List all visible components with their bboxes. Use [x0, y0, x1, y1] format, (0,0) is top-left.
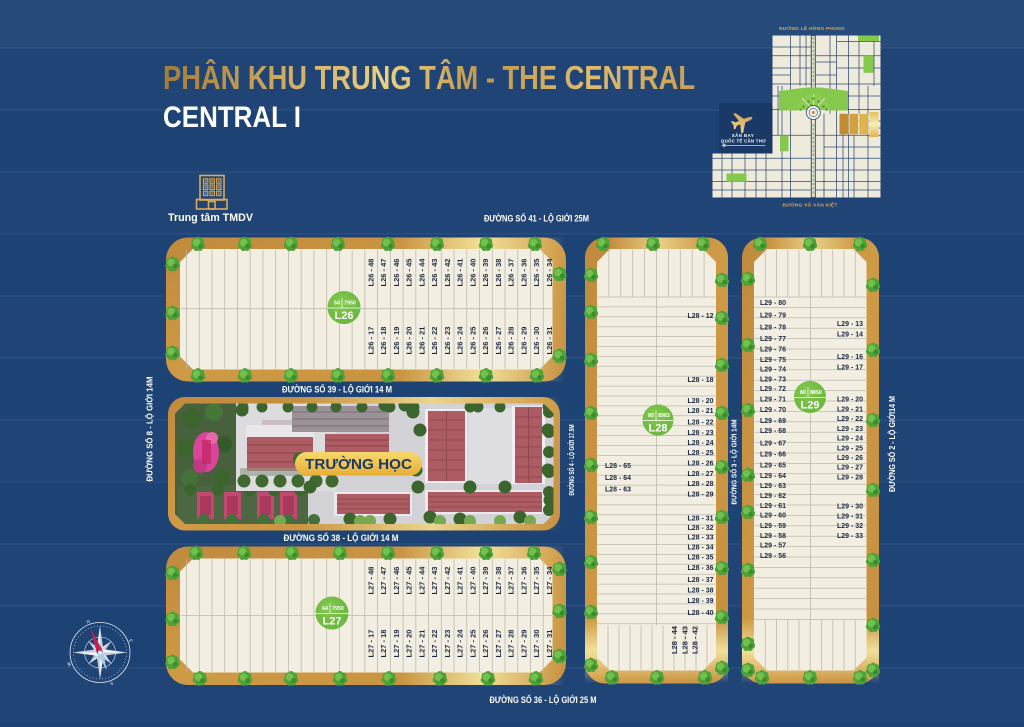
svg-text:CENTRAL I: CENTRAL I	[163, 101, 301, 134]
svg-text:ĐƯỜNG SỐ 8 - LỘ GIỚI 14M: ĐƯỜNG SỐ 8 - LỘ GIỚI 14M	[145, 376, 155, 481]
svg-text:L29 - 60: L29 - 60	[760, 513, 786, 520]
svg-text:L29 - 26: L29 - 26	[837, 455, 863, 462]
svg-text:64: 64	[322, 606, 328, 612]
svg-text:L29 - 30: L29 - 30	[837, 504, 863, 511]
svg-text:L26 - 40: L26 - 40	[468, 259, 477, 287]
svg-text:L29 - 67: L29 - 67	[760, 440, 786, 447]
svg-text:L26 - 19: L26 - 19	[392, 327, 401, 355]
svg-text:L29 - 23: L29 - 23	[837, 426, 863, 433]
svg-text:L26 - 48: L26 - 48	[366, 259, 375, 287]
svg-text:L27 - 42: L27 - 42	[443, 567, 452, 595]
svg-text:L28 - 36: L28 - 36	[687, 565, 713, 572]
svg-text:L28 - 23: L28 - 23	[687, 430, 713, 437]
svg-text:L28 - 22: L28 - 22	[687, 420, 713, 427]
svg-text:L27 - 31: L27 - 31	[545, 630, 554, 658]
svg-text:L28 - 31: L28 - 31	[687, 515, 713, 522]
svg-text:L28 - 34: L28 - 34	[687, 545, 713, 552]
svg-text:L26 - 34: L26 - 34	[545, 258, 554, 287]
svg-text:L27 - 36: L27 - 36	[519, 567, 528, 595]
svg-text:L29 - 25: L29 - 25	[837, 445, 863, 452]
svg-text:L29 - 68: L29 - 68	[760, 428, 786, 435]
svg-text:L26 - 37: L26 - 37	[507, 259, 516, 287]
svg-text:L27 - 39: L27 - 39	[481, 567, 490, 595]
svg-text:L27: L27	[323, 616, 342, 628]
svg-text:L29 - 76: L29 - 76	[760, 347, 786, 354]
svg-text:L28 - 63: L28 - 63	[605, 487, 631, 494]
svg-text:L26 - 39: L26 - 39	[481, 259, 490, 287]
svg-text:L27 - 26: L27 - 26	[481, 630, 490, 658]
svg-text:8983: 8983	[658, 413, 670, 419]
svg-text:L26 - 43: L26 - 43	[430, 259, 439, 287]
svg-text:L28 - 40: L28 - 40	[687, 610, 713, 617]
svg-text:L29 - 59: L29 - 59	[760, 523, 786, 530]
svg-text:ĐƯỜNG SỐ 39 - LỘ GIỚI 14 M: ĐƯỜNG SỐ 39 - LỘ GIỚI 14 M	[282, 384, 392, 396]
svg-text:L29 - 31: L29 - 31	[837, 513, 863, 520]
svg-text:L27 - 25: L27 - 25	[468, 630, 477, 658]
svg-text:L27 - 46: L27 - 46	[392, 567, 401, 595]
svg-text:L26 - 31: L26 - 31	[545, 327, 554, 355]
svg-text:L26 - 28: L26 - 28	[507, 327, 516, 355]
svg-text:L27 - 21: L27 - 21	[417, 630, 426, 658]
svg-text:L26 - 20: L26 - 20	[405, 327, 414, 355]
svg-text:L27 - 18: L27 - 18	[379, 630, 388, 658]
svg-text:L26 - 44: L26 - 44	[417, 258, 426, 287]
svg-text:L27 - 30: L27 - 30	[532, 630, 541, 658]
svg-text:L29 - 33: L29 - 33	[837, 533, 863, 540]
svg-text:L27 - 43: L27 - 43	[430, 567, 439, 595]
svg-text:L26 - 24: L26 - 24	[456, 326, 465, 355]
svg-text:L29 - 28: L29 - 28	[837, 474, 863, 481]
svg-text:L29 - 57: L29 - 57	[760, 543, 786, 550]
svg-text:L26 - 47: L26 - 47	[379, 259, 388, 287]
svg-text:QUỐC TẾ CẦN THƠ: QUỐC TẾ CẦN THƠ	[721, 139, 766, 144]
svg-text:ĐƯỜNG SỐ 36 - LỘ GIỚI 25 M: ĐƯỜNG SỐ 36 - LỘ GIỚI 25 M	[490, 694, 597, 706]
svg-text:L29 - 58: L29 - 58	[760, 533, 786, 540]
svg-text:L29 - 27: L29 - 27	[837, 465, 863, 472]
svg-text:L27 - 20: L27 - 20	[405, 630, 414, 658]
svg-text:L29 - 63: L29 - 63	[760, 483, 786, 490]
svg-text:L27 - 37: L27 - 37	[507, 567, 516, 595]
svg-text:L29 - 56: L29 - 56	[760, 553, 786, 560]
svg-text:L29 - 62: L29 - 62	[760, 493, 786, 500]
svg-text:7950: 7950	[332, 606, 344, 612]
svg-text:L28 - 65: L28 - 65	[605, 463, 631, 470]
svg-text:L26 - 23: L26 - 23	[443, 327, 452, 355]
svg-text:8850: 8850	[810, 390, 822, 396]
svg-text:L29 - 79: L29 - 79	[760, 313, 786, 320]
svg-text:L27 - 47: L27 - 47	[379, 567, 388, 595]
svg-text:L28 - 35: L28 - 35	[687, 555, 713, 562]
svg-text:L26 - 41: L26 - 41	[456, 259, 465, 287]
svg-text:L27 - 28: L27 - 28	[507, 630, 516, 658]
svg-text:L26 - 29: L26 - 29	[519, 327, 528, 355]
svg-text:Trung tâm TMDV: Trung tâm TMDV	[168, 212, 254, 224]
svg-text:ĐƯỜNG SỐ 38 - LỘ GIỚI 14 M: ĐƯỜNG SỐ 38 - LỘ GIỚI 14 M	[284, 532, 399, 544]
svg-text:L26 - 45: L26 - 45	[405, 259, 414, 287]
svg-text:L29 - 61: L29 - 61	[760, 503, 786, 510]
svg-text:PHÂN KHU TRUNG TÂM - THE CENTR: PHÂN KHU TRUNG TÂM - THE CENTRAL	[163, 59, 695, 96]
svg-text:L29 - 73: L29 - 73	[760, 377, 786, 384]
svg-text:L26: L26	[335, 310, 354, 322]
svg-text:L26 - 18: L26 - 18	[379, 327, 388, 355]
svg-text:L29 - 72: L29 - 72	[760, 386, 786, 393]
svg-text:L27 - 24: L27 - 24	[456, 629, 465, 658]
svg-text:L29 - 66: L29 - 66	[760, 452, 786, 459]
svg-text:L29 - 69: L29 - 69	[760, 418, 786, 425]
svg-text:64: 64	[334, 301, 340, 307]
svg-text:TRƯỜNG HỌC: TRƯỜNG HỌC	[305, 455, 412, 473]
svg-text:L28 - 32: L28 - 32	[687, 525, 713, 532]
svg-text:L29 - 74: L29 - 74	[760, 367, 786, 374]
svg-text:L29 - 70: L29 - 70	[760, 407, 786, 414]
svg-text:L27 - 48: L27 - 48	[366, 567, 375, 595]
svg-text:L29 - 22: L29 - 22	[837, 416, 863, 423]
svg-text:L28 - 24: L28 - 24	[687, 440, 713, 447]
svg-text:L27 - 17: L27 - 17	[366, 630, 375, 658]
svg-text:L26 - 17: L26 - 17	[366, 327, 375, 355]
svg-text:L28: L28	[649, 423, 668, 435]
svg-text:L26 - 36: L26 - 36	[519, 259, 528, 287]
svg-text:L27 - 44: L27 - 44	[417, 566, 426, 595]
svg-text:L28 - 29: L28 - 29	[687, 492, 713, 499]
svg-text:L29 - 32: L29 - 32	[837, 523, 863, 530]
svg-text:L26 - 35: L26 - 35	[532, 259, 541, 287]
svg-text:L28 - 38: L28 - 38	[687, 588, 713, 595]
svg-text:L27 - 40: L27 - 40	[468, 567, 477, 595]
svg-text:L27 - 23: L27 - 23	[443, 630, 452, 658]
svg-text:L26 - 30: L26 - 30	[532, 327, 541, 355]
svg-text:L29 - 14: L29 - 14	[837, 331, 863, 338]
svg-text:SÂN BAY: SÂN BAY	[732, 133, 754, 138]
svg-text:L26 - 25: L26 - 25	[468, 327, 477, 355]
svg-text:L28 - 27: L28 - 27	[687, 471, 713, 478]
svg-text:L26 - 38: L26 - 38	[494, 259, 503, 287]
svg-text:L26 - 42: L26 - 42	[443, 259, 452, 287]
svg-text:L29 - 75: L29 - 75	[760, 357, 786, 364]
svg-text:L27 - 45: L27 - 45	[405, 567, 414, 595]
svg-text:L29 - 77: L29 - 77	[760, 336, 786, 343]
svg-text:L28 - 28: L28 - 28	[687, 481, 713, 488]
svg-text:L29 - 80: L29 - 80	[760, 300, 786, 307]
svg-text:L28 - 33: L28 - 33	[687, 535, 713, 542]
svg-text:L29 - 65: L29 - 65	[760, 463, 786, 470]
svg-text:L28 - 37: L28 - 37	[687, 577, 713, 584]
svg-text:L27 - 19: L27 - 19	[392, 630, 401, 658]
svg-text:L29 - 16: L29 - 16	[837, 354, 863, 361]
svg-text:L29 - 20: L29 - 20	[837, 397, 863, 404]
svg-text:L28 - 20: L28 - 20	[687, 398, 713, 405]
svg-text:L28 - 21: L28 - 21	[687, 408, 713, 415]
svg-text:L28 - 18: L28 - 18	[687, 377, 713, 384]
svg-text:80: 80	[648, 413, 654, 419]
svg-text:L27 - 29: L27 - 29	[519, 630, 528, 658]
svg-text:L29 - 64: L29 - 64	[760, 473, 786, 480]
svg-text:L27 - 27: L27 - 27	[494, 630, 503, 658]
svg-text:L28 - 64: L28 - 64	[605, 475, 631, 482]
svg-text:L28 - 12: L28 - 12	[687, 313, 713, 320]
svg-text:L26 - 22: L26 - 22	[430, 327, 439, 355]
svg-text:80: 80	[800, 390, 806, 396]
svg-text:L26 - 27: L26 - 27	[494, 327, 503, 355]
svg-text:L28 - 43: L28 - 43	[681, 626, 690, 654]
svg-text:L27 - 38: L27 - 38	[494, 567, 503, 595]
svg-text:L29 - 78: L29 - 78	[760, 324, 786, 331]
svg-text:L26 - 46: L26 - 46	[392, 259, 401, 287]
svg-text:L27 - 41: L27 - 41	[456, 567, 465, 595]
svg-text:7950: 7950	[344, 301, 356, 307]
svg-text:L29 - 71: L29 - 71	[760, 397, 786, 404]
svg-text:L29 - 13: L29 - 13	[837, 321, 863, 328]
svg-text:L26 - 26: L26 - 26	[481, 327, 490, 355]
svg-text:L26 - 21: L26 - 21	[417, 327, 426, 355]
svg-text:L27 - 35: L27 - 35	[532, 567, 541, 595]
svg-text:ĐƯỜNG SỐ 2 - LỘ GIỚI14 M: ĐƯỜNG SỐ 2 - LỘ GIỚI14 M	[887, 396, 897, 492]
svg-text:L29 - 24: L29 - 24	[837, 436, 863, 443]
svg-text:L27 - 22: L27 - 22	[430, 630, 439, 658]
svg-text:L28 - 44: L28 - 44	[670, 625, 679, 654]
svg-text:L28 - 42: L28 - 42	[691, 626, 700, 654]
svg-text:L29 - 21: L29 - 21	[837, 406, 863, 413]
svg-text:L29 - 17: L29 - 17	[837, 365, 863, 372]
svg-text:L28 - 39: L28 - 39	[687, 598, 713, 605]
svg-text:L28 - 26: L28 - 26	[687, 460, 713, 467]
svg-text:ĐƯỜNG SỐ 3 - LỘ GIỚI 14M: ĐƯỜNG SỐ 3 - LỘ GIỚI 14M	[729, 420, 739, 505]
svg-text:L29: L29	[801, 400, 820, 412]
svg-text:L28 - 25: L28 - 25	[687, 450, 713, 457]
svg-text:ĐƯỜNG SỐ 41 - LỘ GIỚI 25M: ĐƯỜNG SỐ 41 - LỘ GIỚI 25M	[484, 213, 589, 225]
